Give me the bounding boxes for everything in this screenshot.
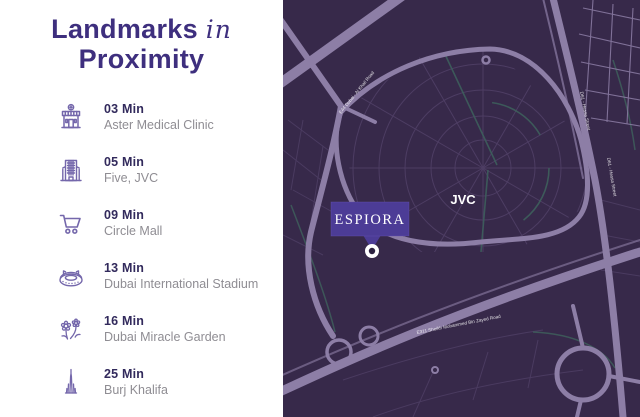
landmark-name: Dubai International Stadium — [104, 277, 258, 291]
landmark-time: 03 Min — [104, 102, 214, 116]
landmark-name: Circle Mall — [104, 224, 162, 238]
landmark-name: Five, JVC — [104, 171, 158, 185]
list-item: 05 Min Five, JVC — [54, 153, 283, 187]
list-item: 16 Min Dubai Miracle Garden — [54, 312, 283, 346]
landmark-time: 13 Min — [104, 261, 258, 275]
list-item: 25 Min Burj Khalifa — [54, 365, 283, 399]
list-item: 09 Min Circle Mall — [54, 206, 283, 240]
landmarks-panel: Landmarks in Proximity 03 Min Aster — [0, 0, 283, 417]
clinic-icon — [54, 100, 88, 134]
title-word1: Landmarks — [51, 14, 198, 44]
landmark-name: Dubai Miracle Garden — [104, 330, 226, 344]
stadium-icon — [54, 259, 88, 293]
area-label-jvc: JVC — [450, 192, 476, 207]
project-badge-label: ESPIORA — [335, 212, 406, 228]
title-script-word: in — [206, 15, 232, 44]
list-item: 03 Min Aster Medical Clinic — [54, 100, 283, 134]
landmark-time: 25 Min — [104, 367, 168, 381]
landmark-time: 16 Min — [104, 314, 226, 328]
title-word2: Proximity — [79, 44, 205, 74]
landmark-list: 03 Min Aster Medical Clinic 05 Min — [0, 100, 283, 399]
landmarks-proximity-screen: Landmarks in Proximity 03 Min Aster — [0, 0, 640, 417]
landmark-time: 05 Min — [104, 155, 158, 169]
tower-icon — [54, 365, 88, 399]
landmark-name: Aster Medical Clinic — [104, 118, 214, 132]
cart-icon — [54, 206, 88, 240]
hotel-icon — [54, 153, 88, 187]
list-item: 13 Min Dubai International Stadium — [54, 259, 283, 293]
landmark-time: 09 Min — [104, 208, 162, 222]
location-map[interactable]: E44 Dubai - Al Khail Road D61 - Hessa St… — [283, 0, 640, 417]
map-canvas: E44 Dubai - Al Khail Road D61 - Hessa St… — [283, 0, 640, 417]
landmark-name: Burj Khalifa — [104, 383, 168, 397]
flowers-icon — [54, 312, 88, 346]
page-title: Landmarks in Proximity — [0, 14, 283, 74]
location-pin-center — [369, 248, 375, 254]
